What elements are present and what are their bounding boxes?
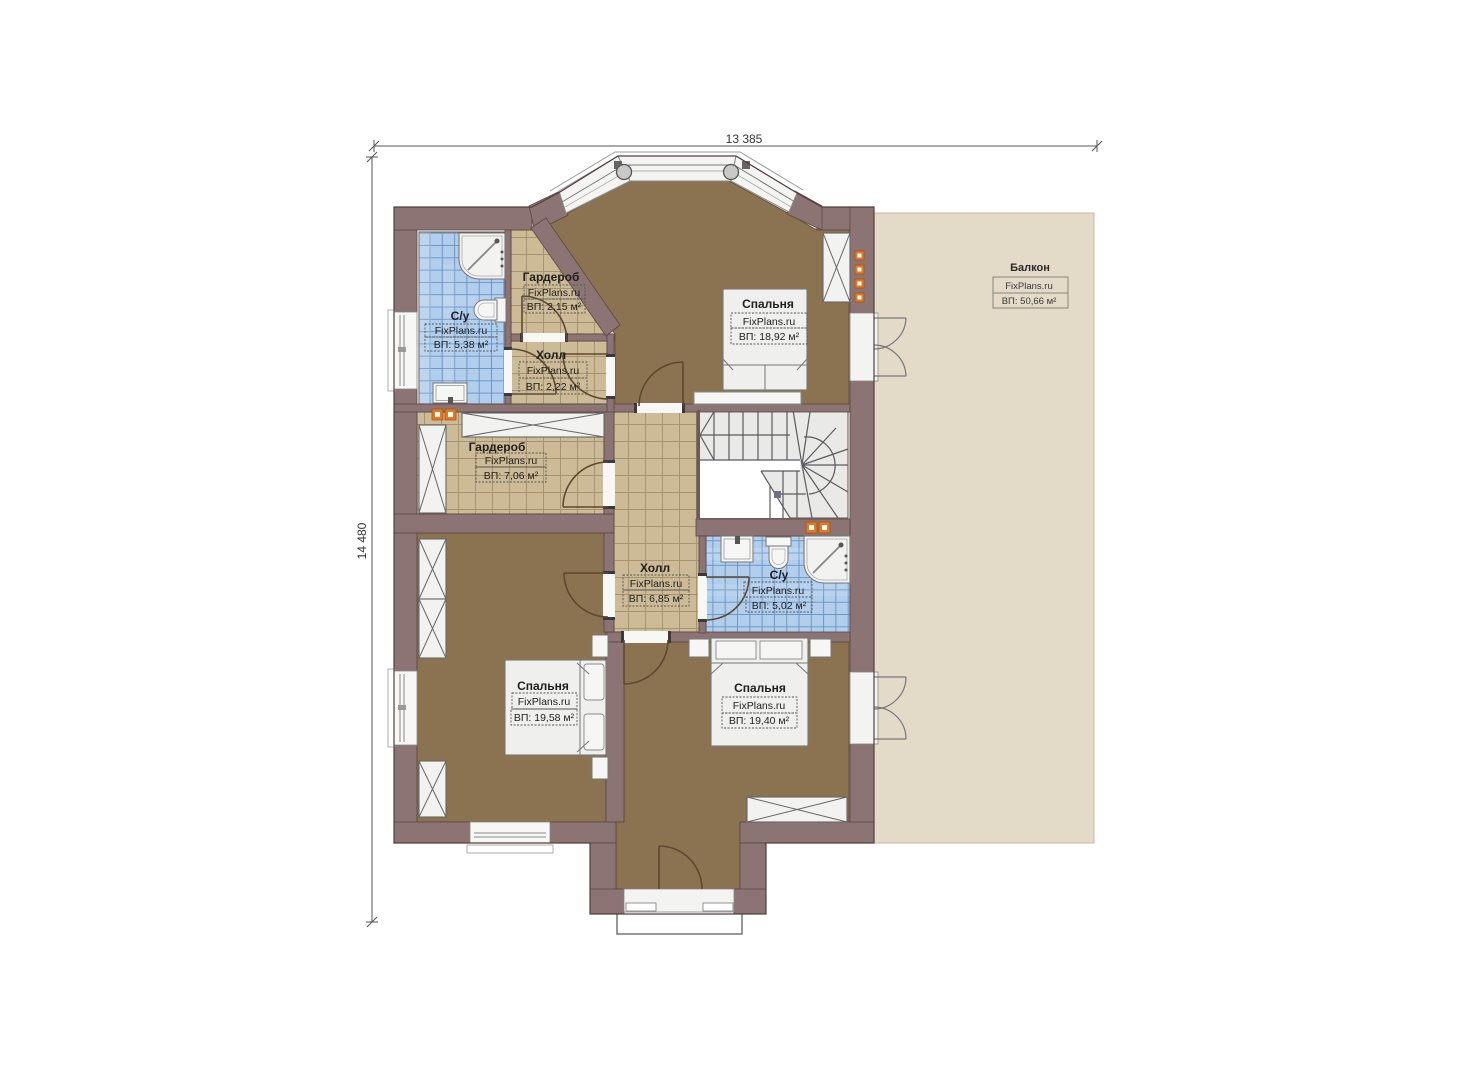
svg-text:ВП: 19,40 м²: ВП: 19,40 м² [729,715,790,727]
svg-text:ВП: 19,58 м²: ВП: 19,58 м² [514,712,575,724]
svg-text:FixPlans.ru: FixPlans.ru [743,316,796,328]
svg-text:Спальня: Спальня [742,297,794,311]
svg-text:FixPlans.ru: FixPlans.ru [485,455,538,467]
svg-text:ВП: 2,22 м²: ВП: 2,22 м² [526,381,581,393]
svg-text:ВП: 7,06 м²: ВП: 7,06 м² [484,470,539,482]
svg-text:Балкон: Балкон [1010,262,1050,274]
svg-text:Холл: Холл [640,561,670,575]
svg-text:Спальня: Спальня [517,679,569,693]
svg-text:ВП: 6,85 м²: ВП: 6,85 м² [629,593,684,605]
svg-text:ВП: 5,38 м²: ВП: 5,38 м² [434,339,489,351]
svg-text:FixPlans.ru: FixPlans.ru [1005,281,1053,292]
svg-text:FixPlans.ru: FixPlans.ru [528,287,581,299]
svg-text:FixPlans.ru: FixPlans.ru [733,700,786,712]
svg-text:FixPlans.ru: FixPlans.ru [752,585,805,597]
svg-text:Гардероб: Гардероб [523,270,580,284]
svg-text:14 480: 14 480 [355,522,369,559]
svg-text:Гардероб: Гардероб [469,440,526,454]
svg-text:13 385: 13 385 [726,132,763,146]
svg-text:Холл: Холл [536,348,566,362]
svg-text:ВП: 50,66 м²: ВП: 50,66 м² [1002,296,1057,307]
svg-text:FixPlans.ru: FixPlans.ru [518,696,571,708]
svg-text:ВП: 18,92 м²: ВП: 18,92 м² [739,331,800,343]
svg-text:С/у: С/у [770,568,789,582]
svg-text:FixPlans.ru: FixPlans.ru [527,365,580,377]
svg-text:ВП: 2,15 м²: ВП: 2,15 м² [527,301,582,313]
svg-text:FixPlans.ru: FixPlans.ru [630,578,683,590]
svg-text:FixPlans.ru: FixPlans.ru [435,325,488,337]
svg-text:Спальня: Спальня [734,681,786,695]
svg-text:С/у: С/у [451,309,470,323]
svg-text:ВП: 5,02 м²: ВП: 5,02 м² [752,600,807,612]
